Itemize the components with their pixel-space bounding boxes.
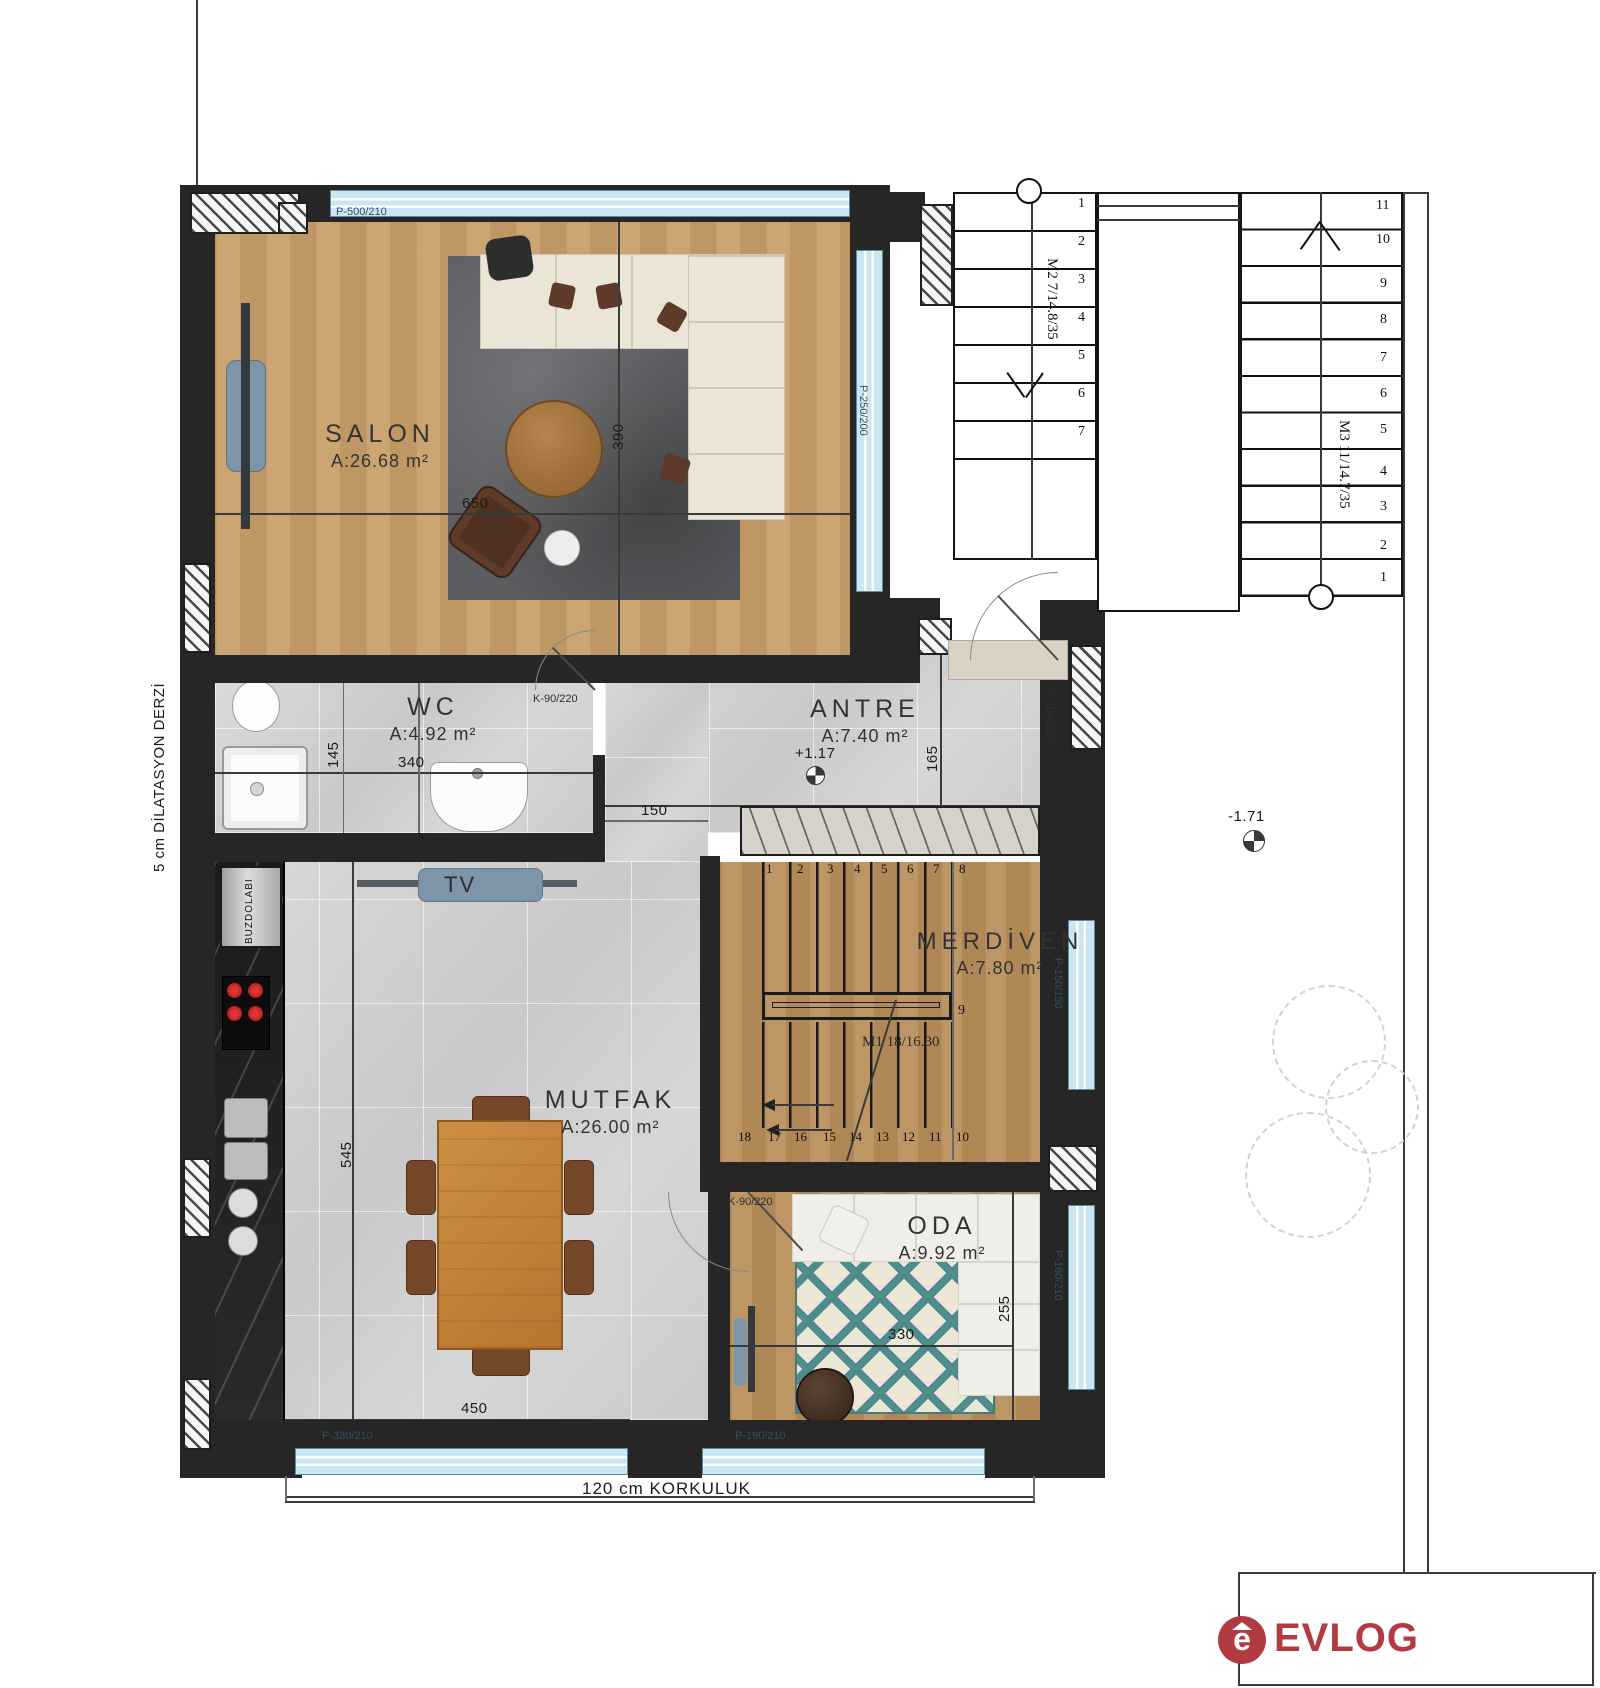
stair-m2-start-circle	[1016, 178, 1042, 204]
m2-step-number: 7	[1078, 424, 1085, 440]
mutfak-area: A:26.00 m²	[528, 1117, 693, 1138]
inner-step-number: 11	[929, 1129, 942, 1145]
oda-door-label: K-90/220	[728, 1196, 773, 1208]
retaining-wall-line-1	[1403, 192, 1405, 1572]
m3-step-number: 9	[1380, 276, 1387, 292]
wall-entry-stub	[885, 192, 925, 242]
merdiven-name: MERDİVEN	[895, 928, 1105, 956]
level-site-symbol	[1243, 830, 1265, 852]
titleblock-right-line	[1592, 1572, 1594, 1686]
hall-dim-line	[605, 820, 708, 822]
dining-chair-right-2	[564, 1240, 594, 1295]
m2-step-number: 2	[1078, 234, 1085, 250]
m3-step-number: 5	[1380, 422, 1387, 438]
stair-m2-treads	[955, 194, 1095, 462]
oda-sofa-right	[958, 1262, 1040, 1396]
inner-step-number: 15	[823, 1129, 836, 1145]
salon-coffee-table	[505, 400, 603, 498]
m3-step-number: 1	[1380, 570, 1387, 586]
m3-step-number: 4	[1380, 464, 1387, 480]
wc-door-label: K-90/220	[533, 693, 578, 705]
stair-m2-divider	[1031, 192, 1033, 560]
stair-landing-inner-line	[772, 1002, 940, 1008]
salon-right-window-label: P-250/200	[857, 385, 869, 436]
kitchen-tv-label: TV	[444, 872, 476, 898]
retaining-wall-top-connector	[1403, 192, 1429, 194]
oda-right-window	[1068, 1205, 1095, 1390]
salon-top-window-label: P-500/210	[336, 206, 387, 218]
m3-step-number: 2	[1380, 538, 1387, 554]
burner-3	[227, 1006, 242, 1021]
wall-wc-right	[593, 755, 605, 833]
shower-drain	[250, 782, 264, 796]
oda-bottom-window-label: P-190/210	[735, 1430, 786, 1442]
level-site-text: -1.71	[1228, 808, 1265, 825]
sink-tray-1	[224, 1098, 268, 1138]
toilet-bowl	[232, 680, 280, 732]
inner-step-number: 4	[854, 861, 861, 877]
burner-2	[248, 983, 263, 998]
page-border-top-left	[196, 0, 198, 190]
evlog-logo-roof-icon	[1232, 1622, 1252, 1630]
oda-label: ODA A:9.92 m²	[872, 1212, 1012, 1264]
stair-landing-line-1	[1097, 205, 1240, 207]
mutfak-name: MUTFAK	[528, 1086, 693, 1115]
inner-step-number: 13	[876, 1129, 889, 1145]
salon-area: A:26.68 m²	[290, 451, 470, 472]
inner-step-number: 12	[902, 1129, 915, 1145]
salon-side-table	[544, 530, 580, 566]
hatch-left-lower	[183, 1158, 211, 1238]
mutfak-label: MUTFAK A:26.00 m²	[528, 1086, 693, 1138]
oda-tv-screen	[748, 1306, 755, 1392]
m2-step-number: 3	[1078, 272, 1085, 288]
dining-chair-right-1	[564, 1160, 594, 1215]
hatch-right-wall-mid	[1048, 1145, 1098, 1192]
wall-below-wc	[180, 833, 605, 862]
dim-antre-165: 165	[924, 745, 941, 772]
shower-tray	[222, 746, 308, 830]
m3-step-number: 8	[1380, 312, 1387, 328]
wc-dim-line-v	[343, 683, 344, 833]
m2-step-number: 4	[1078, 310, 1085, 326]
dim-salon-390: 390	[610, 423, 627, 450]
sink-bowl-2	[228, 1226, 258, 1256]
inner-step-number: 8	[959, 861, 966, 877]
salon-armchair-dark	[484, 234, 534, 282]
refrigerator-label: BUZDOLABI	[244, 878, 255, 944]
kitchen-tv-console	[418, 868, 543, 902]
inner-step-number: 5	[881, 861, 888, 877]
mutfak-bottom-window-label: P-330/210	[322, 1430, 373, 1442]
oda-name: ODA	[872, 1212, 1012, 1241]
washbasin-faucet	[472, 768, 483, 779]
sofa-right-section	[688, 254, 785, 520]
burner-4	[248, 1006, 263, 1021]
wc-dim-line-h	[215, 772, 593, 774]
dining-table	[437, 1120, 563, 1350]
tree-icon-3	[1245, 1112, 1371, 1238]
stair-direction-line-1	[772, 1104, 834, 1106]
inner-step-number: 17	[768, 1129, 781, 1145]
antre-closet	[740, 806, 1040, 856]
railing-line-2	[285, 1501, 1035, 1503]
wall-corner-bottom-mid	[628, 1420, 702, 1478]
entry-door-label: K-100/220	[1044, 690, 1056, 741]
stair-m3-start-circle	[1308, 584, 1334, 610]
inner-step-number: 2	[797, 861, 804, 877]
dim-hall-150: 150	[641, 802, 668, 819]
railing-label: 120 cm KORKULUK	[582, 1479, 751, 1499]
inner-step-number: 7	[933, 861, 940, 877]
titleblock-top-line	[1238, 1572, 1596, 1574]
salon-name: SALON	[290, 420, 470, 449]
m2-step-number: 5	[1078, 348, 1085, 364]
inner-step-number-9: 9	[958, 1003, 965, 1019]
oda-right-window-label: P-160/210	[1052, 1250, 1064, 1301]
level-antre-text: +1.17	[795, 745, 835, 762]
sink-bowl-1	[228, 1188, 258, 1218]
salon-label: SALON A:26.68 m²	[290, 420, 470, 472]
inner-step-number: 1	[766, 861, 773, 877]
sink-tray-2	[224, 1142, 268, 1180]
dim-wc-145: 145	[325, 741, 342, 768]
oda-bottom-window	[702, 1448, 985, 1475]
dim-mutfak-450: 450	[461, 1400, 488, 1417]
m3-step-number: 3	[1380, 499, 1387, 515]
oda-area: A:9.92 m²	[872, 1243, 1012, 1264]
evlog-logo-text: EVLOG	[1274, 1616, 1419, 1661]
sofa-pillow-1	[548, 282, 576, 310]
stair-landing-line-2	[1097, 219, 1240, 221]
stair-m3-label: M3 11/14.7/35	[1335, 420, 1352, 509]
oda-round-table	[796, 1368, 854, 1426]
merdiven-label: MERDİVEN A:7.80 m²	[895, 928, 1105, 979]
inner-step-number: 10	[956, 1129, 969, 1145]
wc-label: WC A:4.92 m²	[363, 693, 503, 745]
dim-oda-255: 255	[996, 1295, 1013, 1322]
oda-dim-line-h	[730, 1345, 1012, 1347]
hatch-entry-right	[918, 618, 952, 655]
salon-top-window	[330, 190, 850, 217]
wall-corner-bottom-right	[985, 1420, 1105, 1478]
m3-step-number: 10	[1376, 232, 1390, 248]
m2-step-number: 1	[1078, 196, 1085, 212]
railing-connector-left	[285, 1476, 287, 1501]
inner-step-number: 6	[907, 861, 914, 877]
hatch-left-bottom	[183, 1378, 211, 1450]
evlog-logo-icon: e	[1218, 1616, 1266, 1664]
inner-step-number: 16	[794, 1129, 807, 1145]
hatch-left-mid	[183, 563, 211, 653]
antre-area: A:7.40 m²	[790, 726, 940, 747]
inner-step-number: 3	[827, 861, 834, 877]
wc-area: A:4.92 m²	[363, 724, 503, 745]
dim-wc-340: 340	[398, 754, 425, 771]
merdiven-area: A:7.80 m²	[895, 958, 1105, 979]
retaining-wall-line-2	[1427, 192, 1429, 1572]
m2-step-number: 6	[1078, 386, 1085, 402]
level-antre-symbol	[806, 766, 825, 785]
dim-oda-330: 330	[888, 1326, 915, 1343]
dim-salon-650: 650	[462, 495, 489, 512]
railing-connector-right	[1033, 1476, 1035, 1501]
stair-m1-label: M1 18/16.30	[862, 1034, 940, 1051]
oda-tv-console	[734, 1318, 747, 1386]
salon-dim-line-h	[215, 513, 850, 515]
mutfak-bottom-window	[295, 1448, 628, 1475]
m3-step-number: 7	[1380, 350, 1387, 366]
hatch-top-corner-2	[278, 202, 308, 234]
dining-chair-left-2	[406, 1240, 436, 1295]
antre-name: ANTRE	[790, 695, 940, 724]
inner-step-number: 18	[738, 1129, 751, 1145]
m3-step-number: 11	[1376, 198, 1389, 214]
antre-label: ANTRE A:7.40 m²	[790, 695, 940, 747]
dining-chair-left-1	[406, 1160, 436, 1215]
dim-mutfak-545: 545	[338, 1141, 355, 1168]
inner-step-number: 14	[849, 1129, 862, 1145]
wall-left	[180, 185, 215, 1455]
merdiven-dim-line-v	[952, 862, 954, 1160]
titleblock-bottom-line	[1238, 1684, 1594, 1686]
stair-m3-divider	[1320, 192, 1322, 597]
stair-landing-box	[1097, 192, 1240, 612]
dilatation-note: 5 cm DİLATASYON DERZİ	[151, 683, 168, 872]
floor-plan-page: { "colors": { "accent_red": "#b23a41", "…	[0, 0, 1600, 1688]
dining-chair-bottom	[472, 1346, 530, 1376]
wc-name: WC	[363, 693, 503, 722]
hatch-entry-column	[920, 204, 953, 306]
burner-1	[227, 983, 242, 998]
m3-step-number: 6	[1380, 386, 1387, 402]
stair-m2-label: M2 7/14.8/35	[1043, 258, 1060, 340]
salon-tv-screen	[241, 303, 250, 529]
